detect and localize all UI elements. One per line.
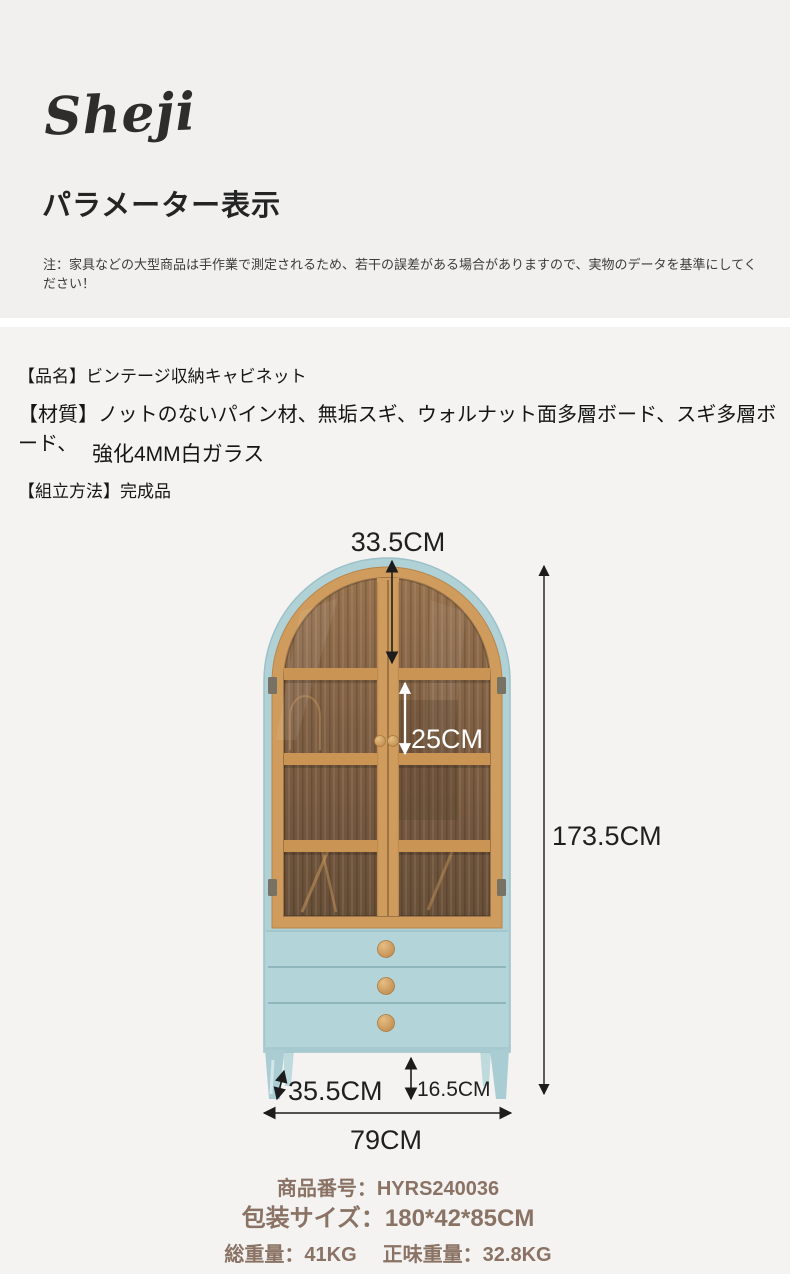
drawer-knob-2 [378,978,395,995]
dim-top-arch-depth-label: 33.5CM [351,527,446,557]
dim-shelf-gap-label: 25CM [411,724,483,754]
door-center-stiles [377,578,399,916]
product-assembly-line: 【組立方法】完成品 [18,477,171,502]
drawer-knob-3 [378,1015,395,1032]
product-name-line: 【品名】ビンテージ収納キャビネット [18,362,307,387]
cabinet-dimension-diagram: 33.5CM 25CM 173.5CM 35.5CM 16.5CM 79CM [0,520,790,1180]
page-title: パラメーター表示 [42,182,281,224]
drawer-section [264,930,510,1052]
dim-width-label: 79CM [350,1125,422,1155]
product-spec-page: Sheji パラメーター表示 注：家具などの大型商品は手作業で測定されるため、若… [0,0,790,1274]
dim-depth-label: 35.5CM [288,1076,383,1106]
item-number: 商品番号：HYRS240036 [0,1172,776,1201]
dim-height-label: 173.5CM [552,821,662,851]
measurement-note: 注：家具などの大型商品は手作業で測定されるため、若干の誤差がある場合がありますの… [43,254,763,292]
product-material-line2: 強化4MM白ガラス [92,438,264,468]
net-weight: 正味重量：32.8KG [383,1244,552,1266]
dim-leg-height-label: 16.5CM [417,1078,491,1101]
weight-line: 総重量：41KG正味重量：32.8KG [0,1238,776,1267]
header-section: Sheji パラメーター表示 注：家具などの大型商品は手作業で測定されるため、若… [0,0,790,318]
gross-weight: 総重量：41KG [224,1244,356,1266]
package-size: 包装サイズ：180*42*85CM [0,1198,776,1233]
brand-logo: Sheji [43,81,197,147]
section-divider [0,318,790,327]
drawer-knob-1 [378,941,395,958]
